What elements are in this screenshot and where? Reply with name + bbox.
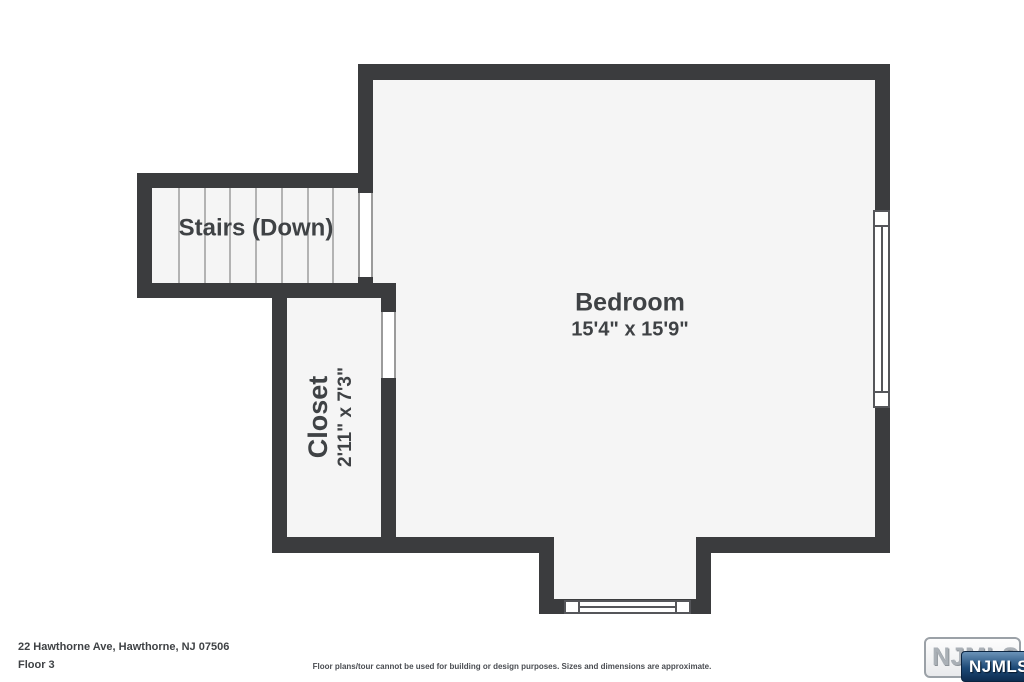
bedroom-right-window: [873, 210, 890, 408]
closet-label: Closet 2'11" x 7'3": [302, 367, 358, 467]
floor-plan-page: Stairs (Down) Bedroom 15'4" x 15'9" Clos…: [0, 0, 1024, 682]
stairs-left-wall: [137, 173, 152, 298]
property-address: 22 Hawthorne Ave, Hawthorne, NJ 07506: [18, 641, 229, 653]
window-center-line: [881, 226, 883, 392]
bedroom-dimensions: 15'4" x 15'9": [571, 318, 688, 343]
bedroom-top-wall: [358, 64, 890, 80]
bedroom-bottom-window: [564, 600, 691, 614]
stairs-bottom-wall: [137, 283, 396, 298]
disclaimer-text: Floor plans/tour cannot be used for buil…: [0, 662, 1024, 671]
stairs-top-wall: [137, 173, 373, 188]
stairs-name: Stairs (Down): [179, 215, 334, 244]
closet-name: Closet: [302, 367, 334, 467]
window-center-line: [579, 606, 676, 608]
bedroom-label: Bedroom 15'4" x 15'9": [571, 288, 688, 343]
bumpout-floor: [554, 537, 696, 599]
bedroom-bottom-wall-right: [711, 537, 890, 553]
closet-door-opening: [381, 312, 396, 378]
bedroom-name: Bedroom: [571, 288, 688, 318]
stairs-door-opening: [358, 193, 373, 277]
njmls-badge: NJMLS: [961, 651, 1024, 682]
closet-dimensions: 2'11" x 7'3": [334, 367, 358, 467]
bedroom-bottom-wall-left: [272, 537, 539, 553]
closet-left-wall: [272, 283, 287, 553]
stairs-label: Stairs (Down): [179, 215, 334, 244]
